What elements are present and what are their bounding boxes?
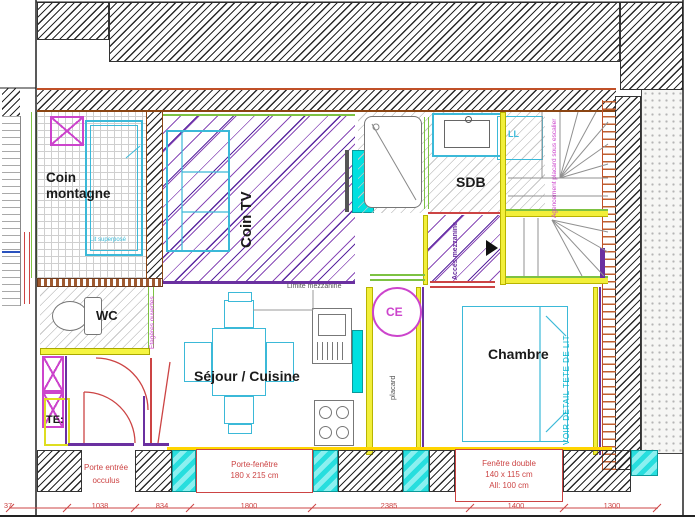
room-label-wc: WC xyxy=(96,308,118,323)
wall-right-insulation xyxy=(602,100,616,470)
wall-top xyxy=(37,88,616,112)
wall-placard-chambre-purple xyxy=(422,287,424,455)
wall-wc-top xyxy=(37,278,163,287)
dim-value: 1038 xyxy=(92,501,109,510)
stair-left-wall xyxy=(500,112,506,285)
double-window-line1: Fenêtre double xyxy=(482,459,536,470)
wall-placard-top xyxy=(370,274,425,281)
stairs-note: Agencement placard sous escalier xyxy=(551,122,558,218)
window-block-3 xyxy=(403,450,429,492)
headboard-note: VOIR DETAIL TETE DE LIT xyxy=(562,300,571,445)
top-band-left xyxy=(37,2,109,40)
dining-table-center xyxy=(212,328,266,396)
french-window-line2: 180 x 215 cm xyxy=(230,471,278,482)
top-band-main xyxy=(109,2,620,62)
chambre-right-wall-yellow xyxy=(593,287,598,455)
bottom-pier-4 xyxy=(429,450,455,492)
french-window-line1: Porte-fenêtre xyxy=(231,460,278,471)
entry-column-1 xyxy=(42,356,64,392)
bottom-pier-3 xyxy=(338,450,403,492)
bunk-bed-note: Lit superposé xyxy=(90,237,126,243)
entry-red-wall xyxy=(150,358,152,443)
kitchen-counter xyxy=(352,330,363,393)
burner-icon xyxy=(336,426,349,439)
room-label-sdb: SDB xyxy=(456,174,486,190)
water-heater-label: CE xyxy=(386,305,403,319)
dim-value: 1800 xyxy=(241,501,258,510)
window-block-2 xyxy=(313,450,338,492)
entry-door-line1: Porte entrée xyxy=(70,462,142,475)
top-band-right xyxy=(620,2,683,90)
kitchen-sink-bowl xyxy=(318,314,346,336)
dining-table-bottom-ext xyxy=(224,396,254,424)
chair-top xyxy=(228,292,252,302)
mezzanine-limit-label: Limite mezzanine xyxy=(287,283,341,290)
double-window-label: Fenêtre double 140 x 115 cm All: 100 cm xyxy=(455,449,563,502)
electrical-board-label: TE: xyxy=(46,414,64,426)
skylight xyxy=(50,116,84,146)
dim-value: 834 xyxy=(156,501,169,510)
window-block-4 xyxy=(631,450,658,476)
tv xyxy=(345,150,349,212)
dim-value: 37 xyxy=(4,501,12,510)
washing-machine-label: LL xyxy=(508,129,519,139)
dim-value: 1400 xyxy=(508,501,525,510)
bottom-pier-5 xyxy=(563,450,631,492)
kitchen-drainer xyxy=(317,342,347,360)
entry-purple-wall-2 xyxy=(143,396,145,445)
double-window-line3: All: 100 cm xyxy=(489,481,529,492)
room-label-coin-montagne: Coin montagne xyxy=(46,170,132,201)
sdb-green-wall xyxy=(424,117,429,209)
stair-landing-strip-2 xyxy=(506,276,608,284)
entry-door-header xyxy=(68,443,134,446)
double-bed xyxy=(462,306,568,442)
left-wall-insulation xyxy=(2,116,21,306)
placard-label: placard xyxy=(388,348,397,400)
toilet-bowl xyxy=(52,301,88,331)
coin-montagne-green-wall xyxy=(31,112,37,278)
room-label-coin-tv: Coin TV xyxy=(238,148,255,248)
shower xyxy=(364,116,422,208)
dim-value: 1300 xyxy=(604,501,621,510)
room-label-sejour: Séjour / Cuisine xyxy=(194,368,300,384)
left-red-lines xyxy=(24,232,30,304)
french-window-label: Porte-fenêtre 180 x 215 cm xyxy=(196,449,313,493)
entry-door-label: Porte entrée occulus xyxy=(70,462,142,488)
sofa xyxy=(166,130,230,252)
door-swings xyxy=(84,358,170,443)
burner-icon xyxy=(319,406,332,419)
wall-right xyxy=(615,96,641,470)
wc-shelves-note: Etagères ouvertes xyxy=(149,289,156,349)
entry-purple-wall-1 xyxy=(65,356,67,444)
wc-bottom-wall xyxy=(40,348,150,355)
wall-montagne-tv xyxy=(146,112,163,282)
stairs-lower-treads xyxy=(524,218,608,276)
mezzanine-access-arrow xyxy=(486,240,498,256)
dining-table-top-ext xyxy=(224,300,254,328)
dim-value: 2385 xyxy=(381,501,398,510)
faucet xyxy=(465,116,472,123)
left-wall-hatch xyxy=(2,88,20,116)
floor-plan: Porte-fenêtre 180 x 215 cm Fenêtre doubl… xyxy=(0,0,695,521)
burner-icon xyxy=(319,426,332,439)
entry-purple-wall-3 xyxy=(143,443,169,446)
chambre-right-wall-purple xyxy=(599,287,601,455)
chair-bottom xyxy=(228,424,252,434)
stair-purple-mark xyxy=(600,248,605,278)
exterior-ground xyxy=(641,90,683,454)
kitchen-hob xyxy=(314,400,354,446)
double-window-line2: 140 x 115 cm xyxy=(485,470,532,481)
mezzanine-access-label: Accès mezzanine xyxy=(452,218,459,280)
room-label-chambre: Chambre xyxy=(488,346,549,362)
washbasin xyxy=(444,120,490,148)
window-block-1 xyxy=(172,450,196,492)
burner-icon xyxy=(336,406,349,419)
entry-door-line2: occulus xyxy=(70,475,142,488)
